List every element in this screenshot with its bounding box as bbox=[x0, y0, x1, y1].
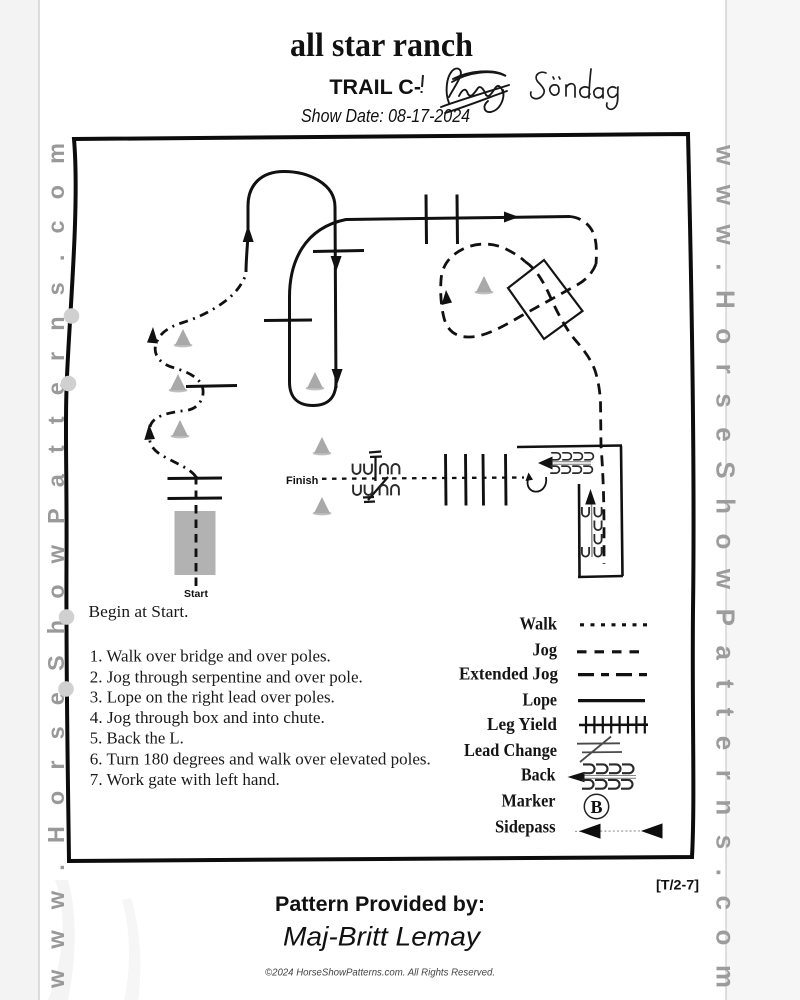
svg-text:all star ranch: all star ranch bbox=[290, 27, 473, 64]
svg-text:Marker: Marker bbox=[502, 791, 556, 811]
svg-text:Pattern Provided by:: Pattern Provided by: bbox=[275, 893, 485, 916]
svg-text:©2024 HorseShowPatterns.com. A: ©2024 HorseShowPatterns.com. All Rights … bbox=[265, 968, 495, 979]
svg-text:Leg Yield: Leg Yield bbox=[487, 714, 557, 734]
svg-text:4. Jog through box and into ch: 4. Jog through box and into chute. bbox=[90, 708, 325, 727]
svg-text:5. Back the L.: 5. Back the L. bbox=[90, 728, 184, 747]
svg-text:B: B bbox=[590, 797, 602, 817]
svg-text:Show Date: 08-17-2024: Show Date: 08-17-2024 bbox=[301, 106, 470, 126]
svg-text:1. Walk over bridge and over p: 1. Walk over bridge and over poles. bbox=[90, 647, 331, 666]
svg-text:Extended Jog: Extended Jog bbox=[459, 664, 558, 684]
svg-text:Sidepass: Sidepass bbox=[495, 817, 556, 837]
svg-text:3. Lope on the right lead over: 3. Lope on the right lead over poles. bbox=[90, 688, 335, 707]
svg-text:Finish: Finish bbox=[286, 475, 319, 487]
svg-text:Walk: Walk bbox=[520, 613, 558, 633]
svg-text:7. Work gate with left hand.: 7. Work gate with left hand. bbox=[90, 770, 280, 789]
svg-text:Begin at Start.: Begin at Start. bbox=[89, 602, 189, 621]
svg-text:[T/2-7]: [T/2-7] bbox=[656, 878, 699, 893]
svg-text:Start: Start bbox=[184, 588, 208, 600]
svg-text:Lope: Lope bbox=[523, 690, 558, 710]
svg-text:Lead Change: Lead Change bbox=[464, 740, 557, 760]
svg-text:Back: Back bbox=[521, 765, 556, 785]
svg-text:Jog: Jog bbox=[533, 639, 558, 659]
svg-text:2. Jog through serpentine and: 2. Jog through serpentine and over pole. bbox=[90, 667, 363, 686]
svg-text:Maj-Britt Lemay: Maj-Britt Lemay bbox=[283, 922, 482, 952]
svg-text:6. Turn 180 degrees and walk o: 6. Turn 180 degrees and walk over elevat… bbox=[90, 750, 431, 769]
svg-text:TRAIL C-: TRAIL C- bbox=[329, 75, 421, 99]
